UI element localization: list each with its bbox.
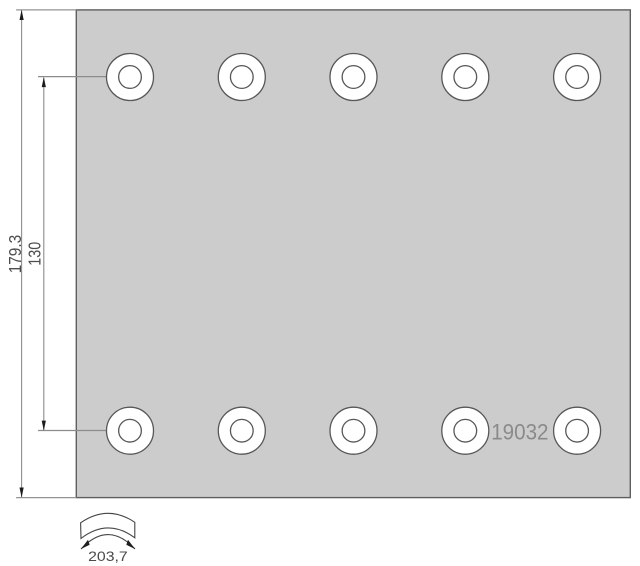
svg-text:130: 130 <box>24 242 44 266</box>
svg-text:203,7: 203,7 <box>88 548 128 564</box>
svg-text:19032: 19032 <box>491 419 548 444</box>
svg-text:179.3: 179.3 <box>5 235 25 274</box>
